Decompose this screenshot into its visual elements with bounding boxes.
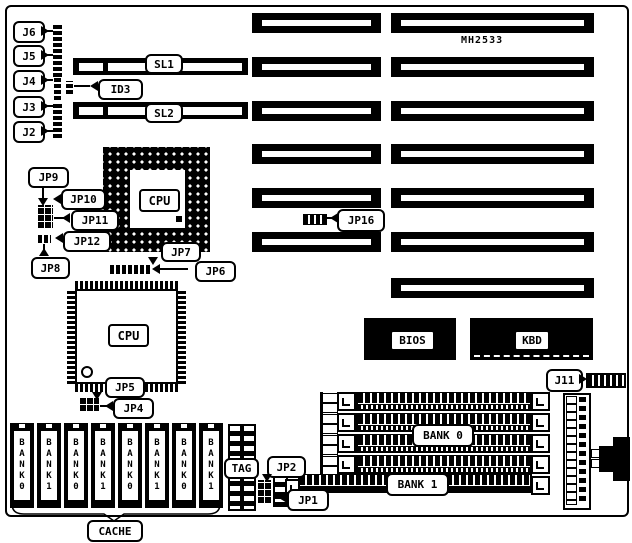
expansion-slot-segment (252, 57, 381, 77)
pin-header-strip (54, 77, 61, 100)
cache-chip-body: BANK0 (14, 431, 30, 500)
jumper-label-jp8: JP8 (31, 257, 70, 279)
expansion-slot-segment (252, 101, 381, 121)
simm-latch (337, 434, 356, 453)
cache-chip-body: BANK1 (41, 431, 57, 500)
jumper-block-jp9-jp12 (38, 205, 53, 228)
board-model-text: MH2533 (461, 35, 503, 46)
expansion-slot-segment (252, 188, 381, 208)
qfp-pins-left (67, 289, 75, 384)
qfp-pins-top (75, 281, 178, 289)
cache-chip-body: BANK0 (68, 431, 84, 500)
callout-tail (105, 401, 113, 411)
slot-label-sl2: SL2 (145, 103, 183, 123)
simm-socket-bank0 (356, 392, 532, 411)
simm-latch (337, 455, 356, 474)
simm-latch (337, 413, 356, 432)
callout-tail (90, 81, 98, 91)
jumper-label-id3: ID3 (98, 79, 143, 100)
chip-label-cpu-qfp: CPU (108, 324, 149, 347)
cache-chip-body: BANK1 (95, 431, 111, 500)
jumper-jp8 (38, 235, 51, 243)
simm-latch (531, 455, 550, 474)
jumper-label-jp4: JP4 (113, 398, 154, 419)
cache-chip-body: BANK1 (149, 431, 165, 500)
power-pin-column (579, 397, 586, 503)
callout-tail (41, 26, 49, 36)
connector-label-j11: J11 (546, 369, 583, 392)
callout-tail (152, 264, 160, 274)
qfp-pins-right (178, 289, 186, 384)
power-pin-column (566, 396, 577, 505)
slot-label-sl1: SL1 (145, 54, 183, 74)
callout-tail (262, 474, 272, 482)
slot-key-divider (103, 62, 108, 72)
jumper-label-jp12: JP12 (63, 231, 111, 252)
jumper-jp16 (303, 214, 327, 225)
callout-tail (41, 126, 49, 136)
jumper-label-jp9: JP9 (28, 167, 69, 188)
cache-chip-label: BANK1 (44, 438, 54, 493)
cache-chip: BANK0 (118, 423, 142, 508)
simm-latch (531, 413, 550, 432)
callout-tail (92, 392, 102, 400)
jumper-block-jp1-jp2 (258, 480, 272, 503)
cache-chip-body: BANK1 (203, 431, 219, 500)
motherboard-diagram: MH2533 SL1 SL2 J6 J5 J4 J3 J2 ID3 JP (0, 0, 632, 543)
simm-end-cell (322, 414, 338, 424)
callout-tail (41, 50, 49, 60)
simm-end-cell (322, 435, 338, 445)
pin-header-strip (53, 23, 62, 77)
jumper-label-jp16: JP16 (337, 209, 385, 232)
cache-chip: BANK1 (91, 423, 115, 508)
simm-latch (531, 476, 550, 495)
pin-header-strip (53, 104, 62, 138)
cache-chip-body: BANK0 (176, 431, 192, 500)
jumper-label-jp11: JP11 (71, 210, 119, 231)
jumper-id3 (66, 81, 73, 94)
expansion-slot-segment (391, 232, 594, 252)
jumper-label-jp5: JP5 (105, 377, 145, 398)
simm-end-cell (322, 393, 338, 403)
expansion-slot-segment (391, 101, 594, 121)
simm-end-cell (322, 403, 338, 413)
callout-tail (55, 233, 63, 243)
simm-end-cell (322, 456, 338, 466)
power-connector (563, 393, 591, 510)
cache-chip: BANK0 (10, 423, 34, 508)
jumper-label-jp10: JP10 (61, 189, 106, 210)
expansion-slot-segment (391, 144, 594, 164)
cache-chip: BANK1 (145, 423, 169, 508)
slot-key-divider (103, 106, 108, 116)
callout-tail (279, 493, 287, 503)
expansion-slot-segment (252, 13, 381, 33)
simm-rail (320, 392, 323, 474)
cache-chip: BANK0 (64, 423, 88, 508)
callout-tail (38, 198, 48, 206)
simm-socket-bank0 (356, 455, 532, 474)
expansion-slot-segment (391, 278, 594, 298)
callout-tail (39, 248, 49, 256)
jumper-header-jp7 (110, 265, 150, 274)
expansion-slot-segment (252, 144, 381, 164)
cache-chip-label: BANK0 (125, 438, 135, 493)
callout-line (74, 85, 90, 87)
chip-label-kbd: KBD (515, 331, 549, 350)
cache-chip-label: BANK1 (98, 438, 108, 493)
cache-chip: BANK0 (172, 423, 196, 508)
cache-label: CACHE (87, 520, 143, 542)
callout-tail (62, 213, 70, 223)
memory-label-bank0: BANK 0 (412, 424, 474, 447)
keyboard-din-connector (613, 437, 630, 481)
simm-end-cell (322, 445, 338, 455)
expansion-slot-segment (252, 232, 381, 252)
simm-latch (531, 434, 550, 453)
callout-tail (53, 194, 61, 204)
keyboard-din-connector-neck (599, 446, 614, 472)
expansion-slot-segment (391, 188, 594, 208)
pin1-circle-marker (81, 366, 93, 378)
jumper-label-jp2: JP2 (267, 456, 306, 478)
cache-chip-label: BANK1 (206, 438, 216, 493)
memory-label-bank1: BANK 1 (386, 473, 449, 496)
simm-latch (531, 392, 550, 411)
simm-latch (337, 392, 356, 411)
cache-chip-body: BANK0 (122, 431, 138, 500)
jumper-label-jp1: JP1 (287, 489, 329, 511)
callout-tail (41, 75, 49, 85)
cache-chip-label: BANK1 (152, 438, 162, 493)
pin-header-j11 (586, 373, 626, 388)
callout-tail (41, 101, 49, 111)
chip-label-bios: BIOS (391, 331, 434, 350)
simm-end-cell (322, 424, 338, 434)
cache-chip-label: BANK0 (71, 438, 81, 493)
jumper-label-jp6: JP6 (195, 261, 236, 282)
cache-chip: BANK1 (199, 423, 223, 508)
chip-label-tag: TAG (224, 458, 259, 479)
pin1-marker (176, 216, 182, 222)
cache-chip-label: BANK0 (179, 438, 189, 493)
cache-chip: BANK1 (37, 423, 61, 508)
cache-chip-label: BANK0 (17, 438, 27, 493)
expansion-slot-segment (391, 57, 594, 77)
jumper-label-jp7: JP7 (161, 242, 201, 262)
callout-tail (579, 374, 587, 384)
expansion-slot-segment (391, 13, 594, 33)
chip-label-cpu-pga: CPU (139, 189, 180, 212)
